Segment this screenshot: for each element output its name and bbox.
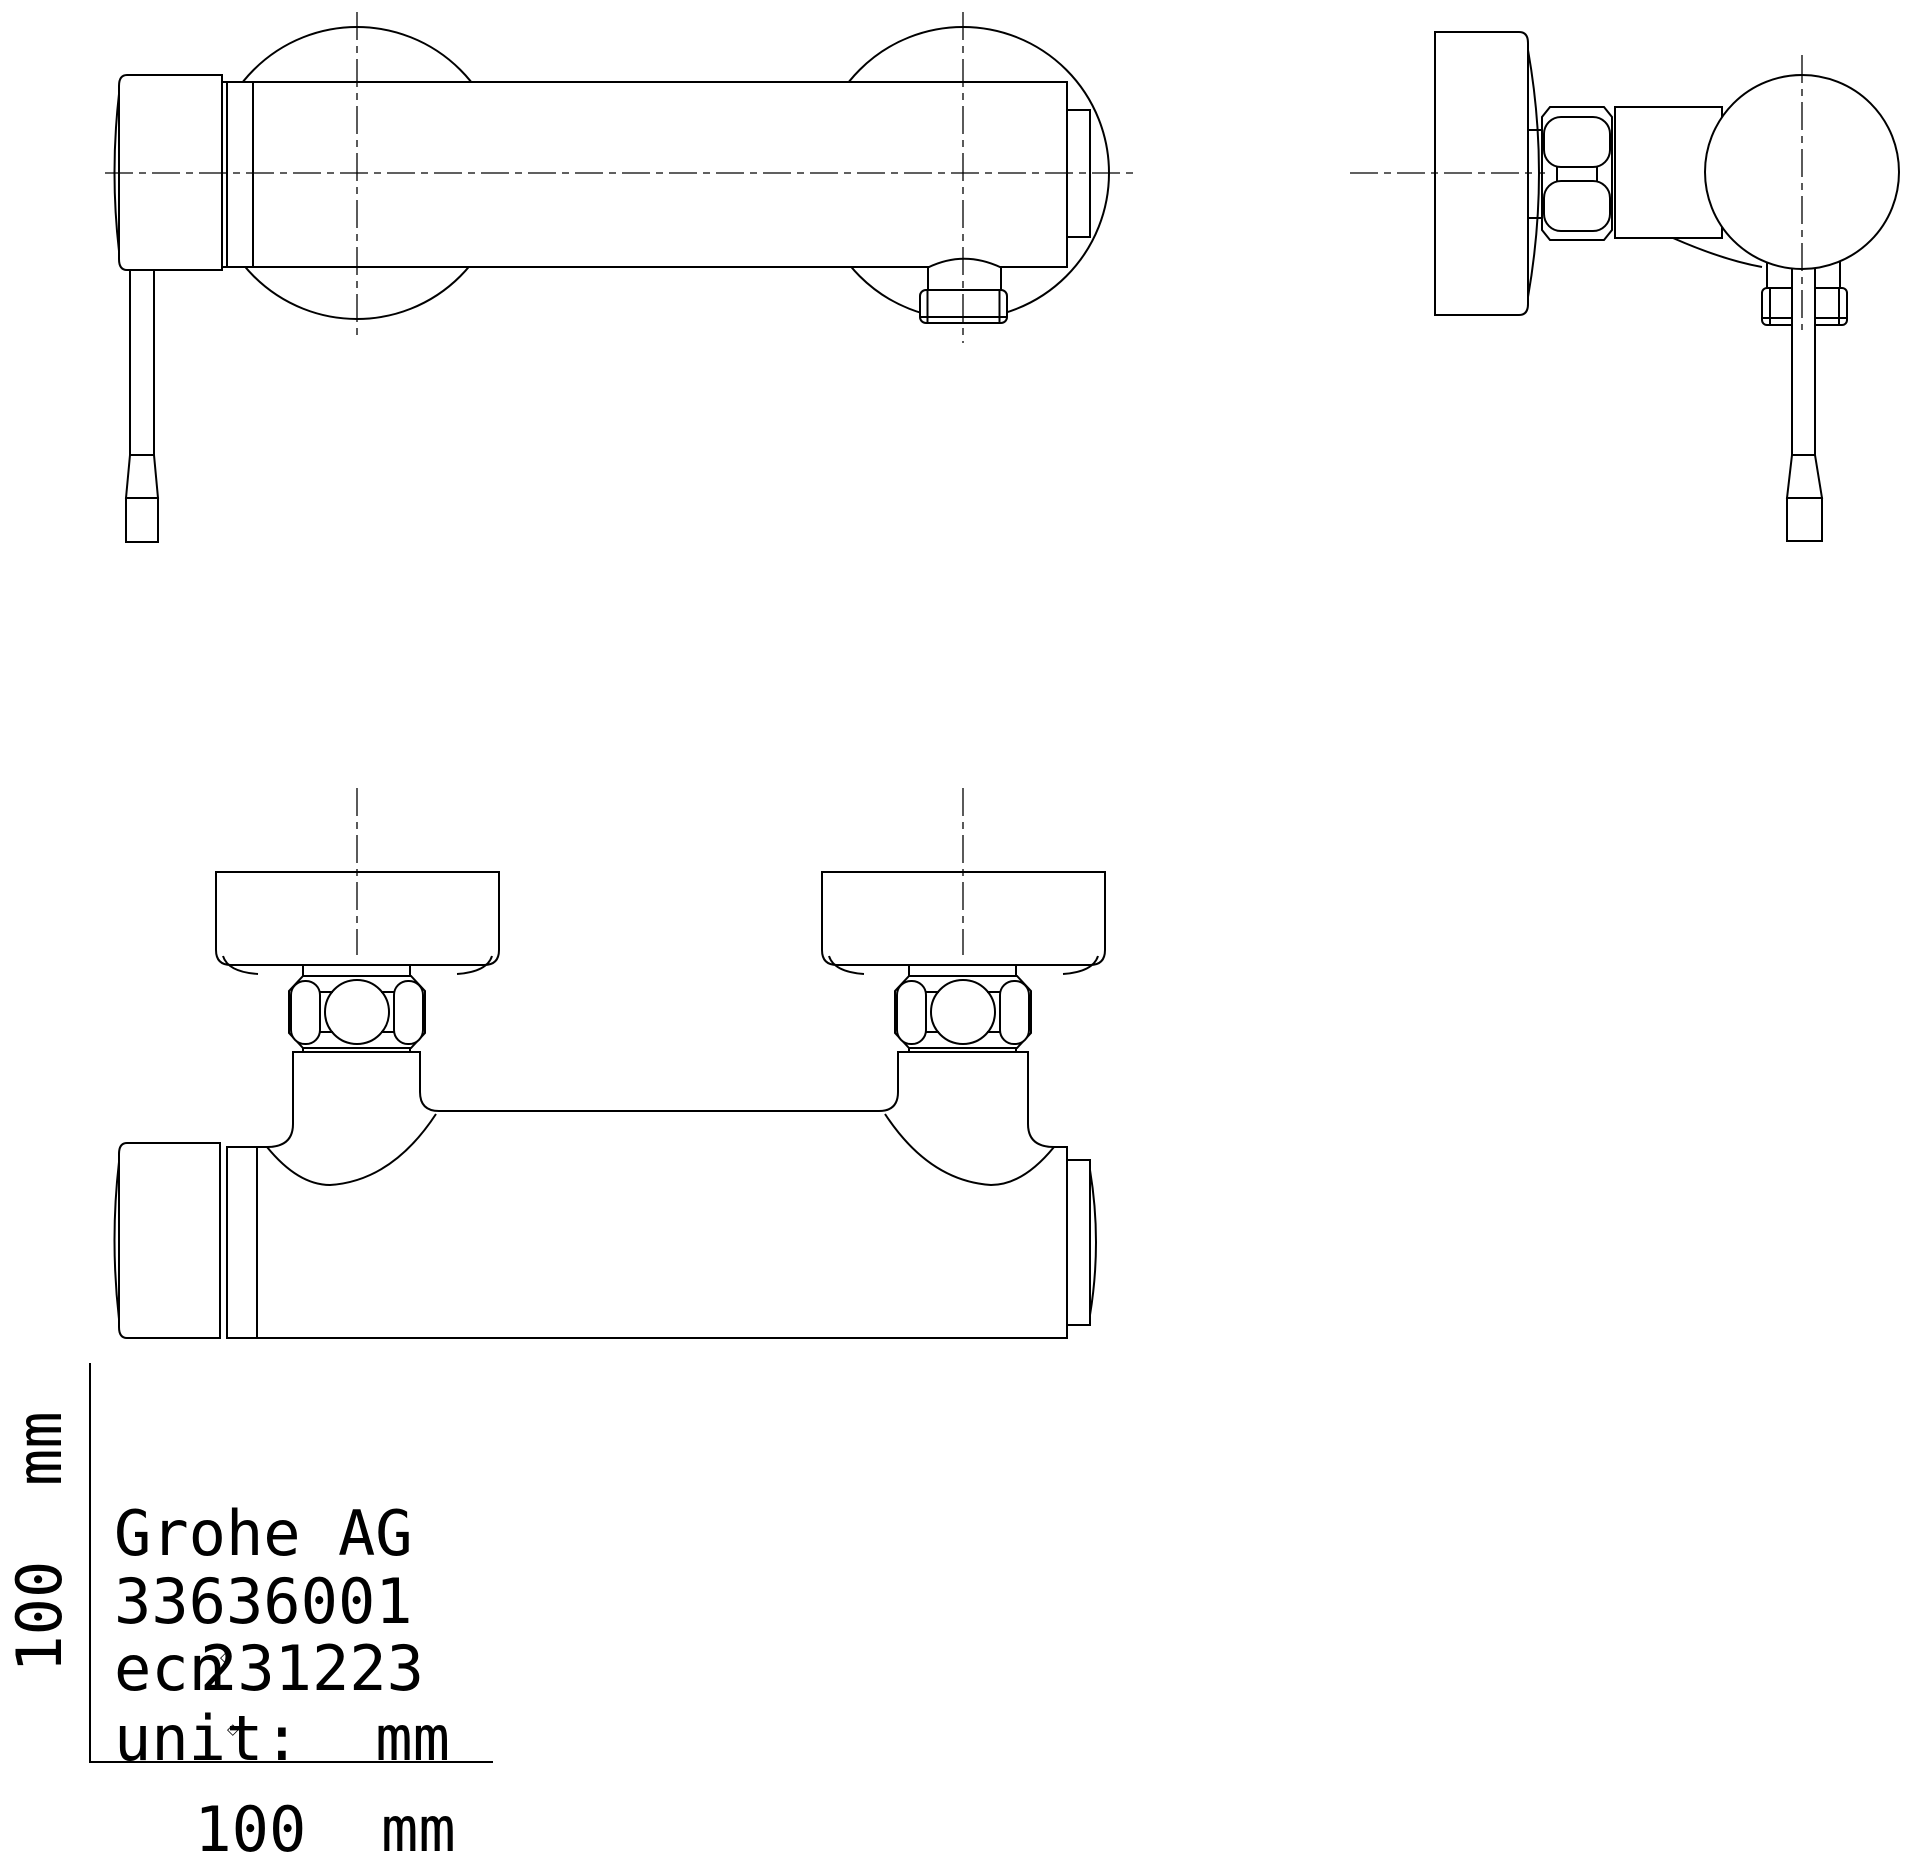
- ecn-number-text: 231223: [200, 1638, 424, 1700]
- technical-drawing: 100 mm Grohe AG 33636001 ecn 231223 unit…: [0, 0, 1920, 1864]
- stray-diamond-mark-2: ◇: [227, 1722, 239, 1737]
- lever-shaft: [130, 270, 154, 455]
- body-right-tip-plan: [1067, 1160, 1090, 1325]
- lever-flare: [126, 455, 158, 498]
- front-view: [105, 12, 1135, 542]
- horizontal-scale-text: 100 mm: [194, 1799, 455, 1861]
- lever-grip: [126, 498, 158, 542]
- vertical-scale-text: 100 mm: [9, 1411, 71, 1672]
- lever-flare-side: [1787, 455, 1822, 498]
- outlet-neck: [928, 266, 1001, 290]
- product-code-text: 33636001: [114, 1571, 413, 1633]
- unit-text: unit: mm: [114, 1708, 450, 1770]
- mixer-body: [221, 82, 1067, 267]
- stray-diamond-mark-1: ◇: [220, 1650, 232, 1665]
- lever-shaft-side: [1792, 250, 1815, 455]
- mixer-body-plan: [227, 1052, 1067, 1338]
- bottom-view: [115, 788, 1106, 1338]
- left-end-cap-plan: [119, 1143, 220, 1338]
- lever-grip-side: [1787, 498, 1822, 541]
- manufacturer-text: Grohe AG: [114, 1503, 413, 1565]
- side-view: [1350, 32, 1899, 541]
